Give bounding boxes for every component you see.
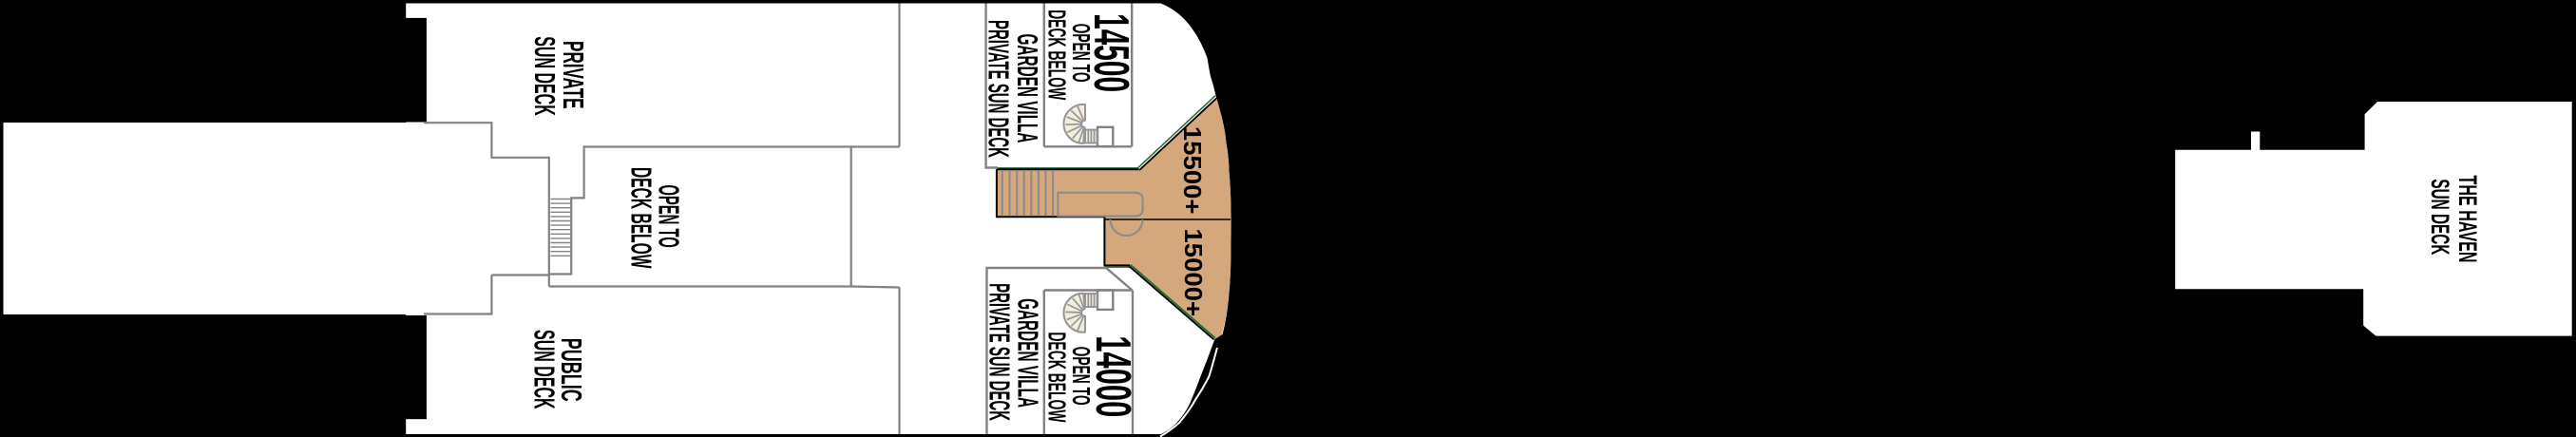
svg-text:15000+: 15000+ (1179, 229, 1208, 317)
svg-text:DECK BELOW: DECK BELOW (1042, 332, 1069, 424)
svg-text:14000: 14000 (1085, 335, 1140, 417)
svg-text:THE HAVEN: THE HAVEN (2453, 176, 2482, 263)
svg-text:15500+: 15500+ (1178, 126, 1207, 215)
svg-text:SUN DECK: SUN DECK (528, 36, 562, 116)
svg-text:DECK BELOW: DECK BELOW (1042, 9, 1069, 101)
svg-text:PRIVATE SUN DECK: PRIVATE SUN DECK (983, 283, 1016, 421)
svg-text:SUN DECK: SUN DECK (528, 330, 562, 409)
svg-text:DECK BELOW: DECK BELOW (624, 167, 658, 269)
svg-text:PRIVATE SUN DECK: PRIVATE SUN DECK (983, 20, 1016, 158)
svg-text:SUN DECK: SUN DECK (2426, 179, 2454, 255)
svg-text:14500: 14500 (1083, 13, 1138, 92)
